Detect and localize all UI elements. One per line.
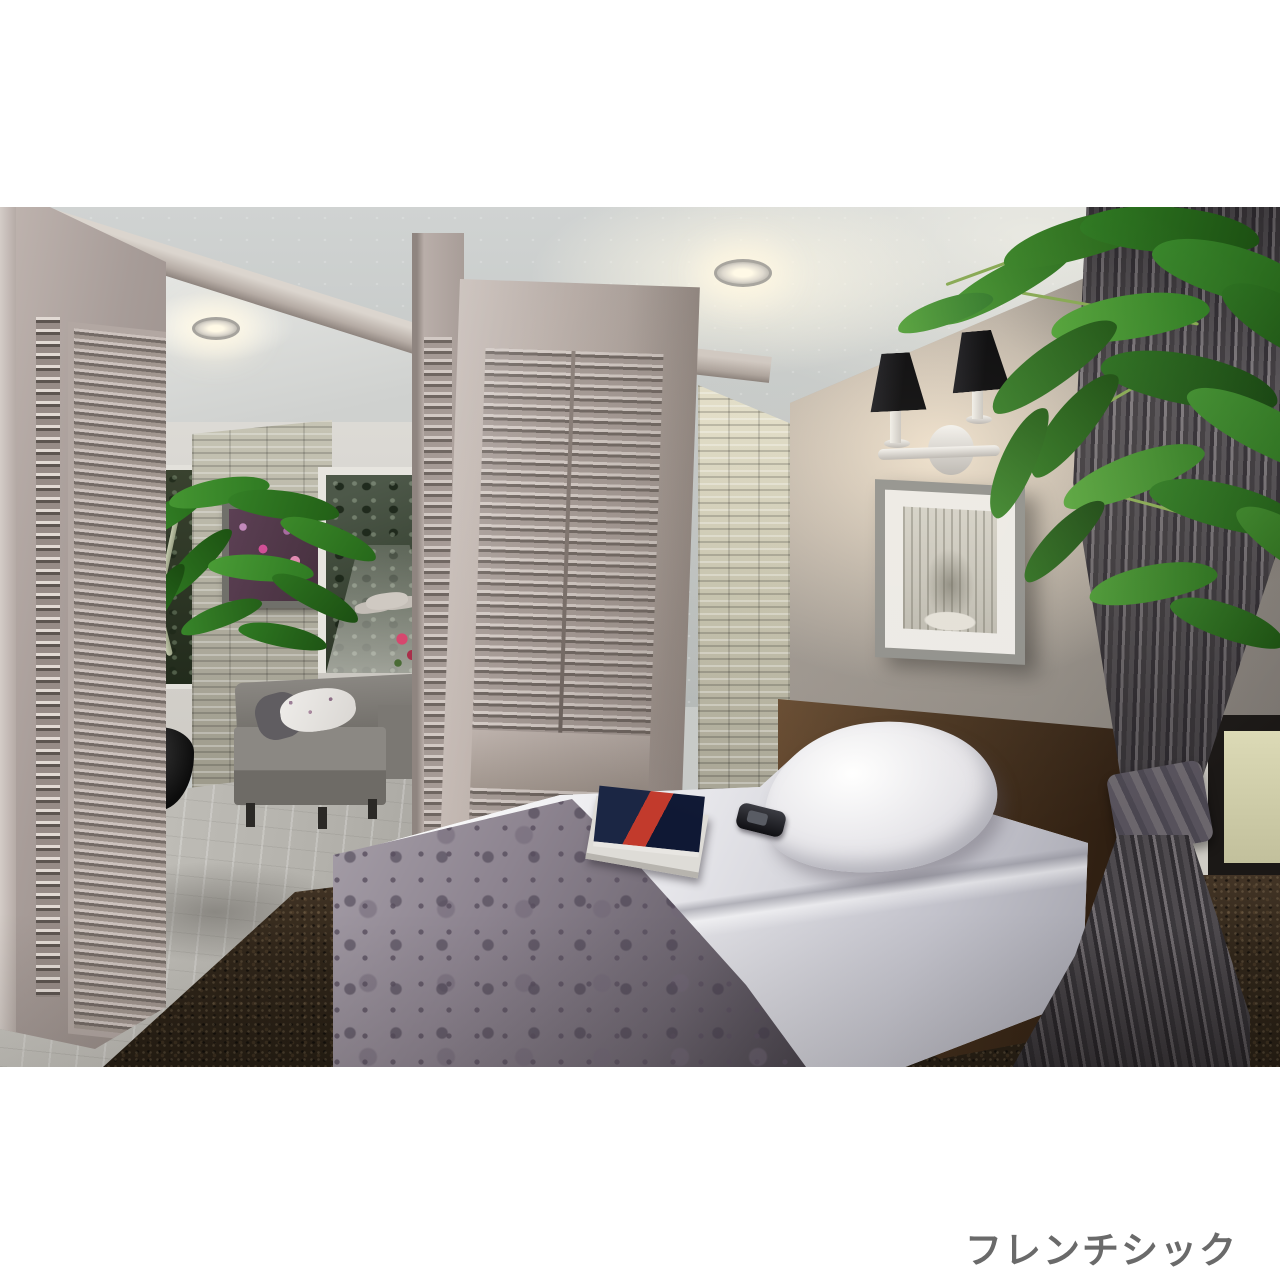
window-blind-pane <box>1224 731 1280 863</box>
sliding-louver-door-wide <box>440 279 699 847</box>
magazine-top <box>593 786 705 858</box>
botanical-artwork <box>903 507 997 634</box>
phone-screen <box>746 810 768 826</box>
caption: フレンチシック <box>965 1220 1238 1274</box>
interior-rendering <box>0 207 1280 1067</box>
door-sheen <box>440 279 699 847</box>
sofa-chaise <box>234 727 386 805</box>
closet-louver-panel <box>68 322 172 1045</box>
closet-louver-column <box>36 317 60 997</box>
sofa-leg <box>368 799 377 819</box>
sconce-candle-left <box>890 407 901 443</box>
far-recessed-downlight <box>192 317 240 340</box>
closet-door-edge <box>0 207 16 1053</box>
louvered-closet-doors <box>0 207 166 1053</box>
sofa-leg <box>318 807 327 829</box>
recessed-downlight <box>714 259 772 287</box>
sofa-leg <box>246 803 255 827</box>
